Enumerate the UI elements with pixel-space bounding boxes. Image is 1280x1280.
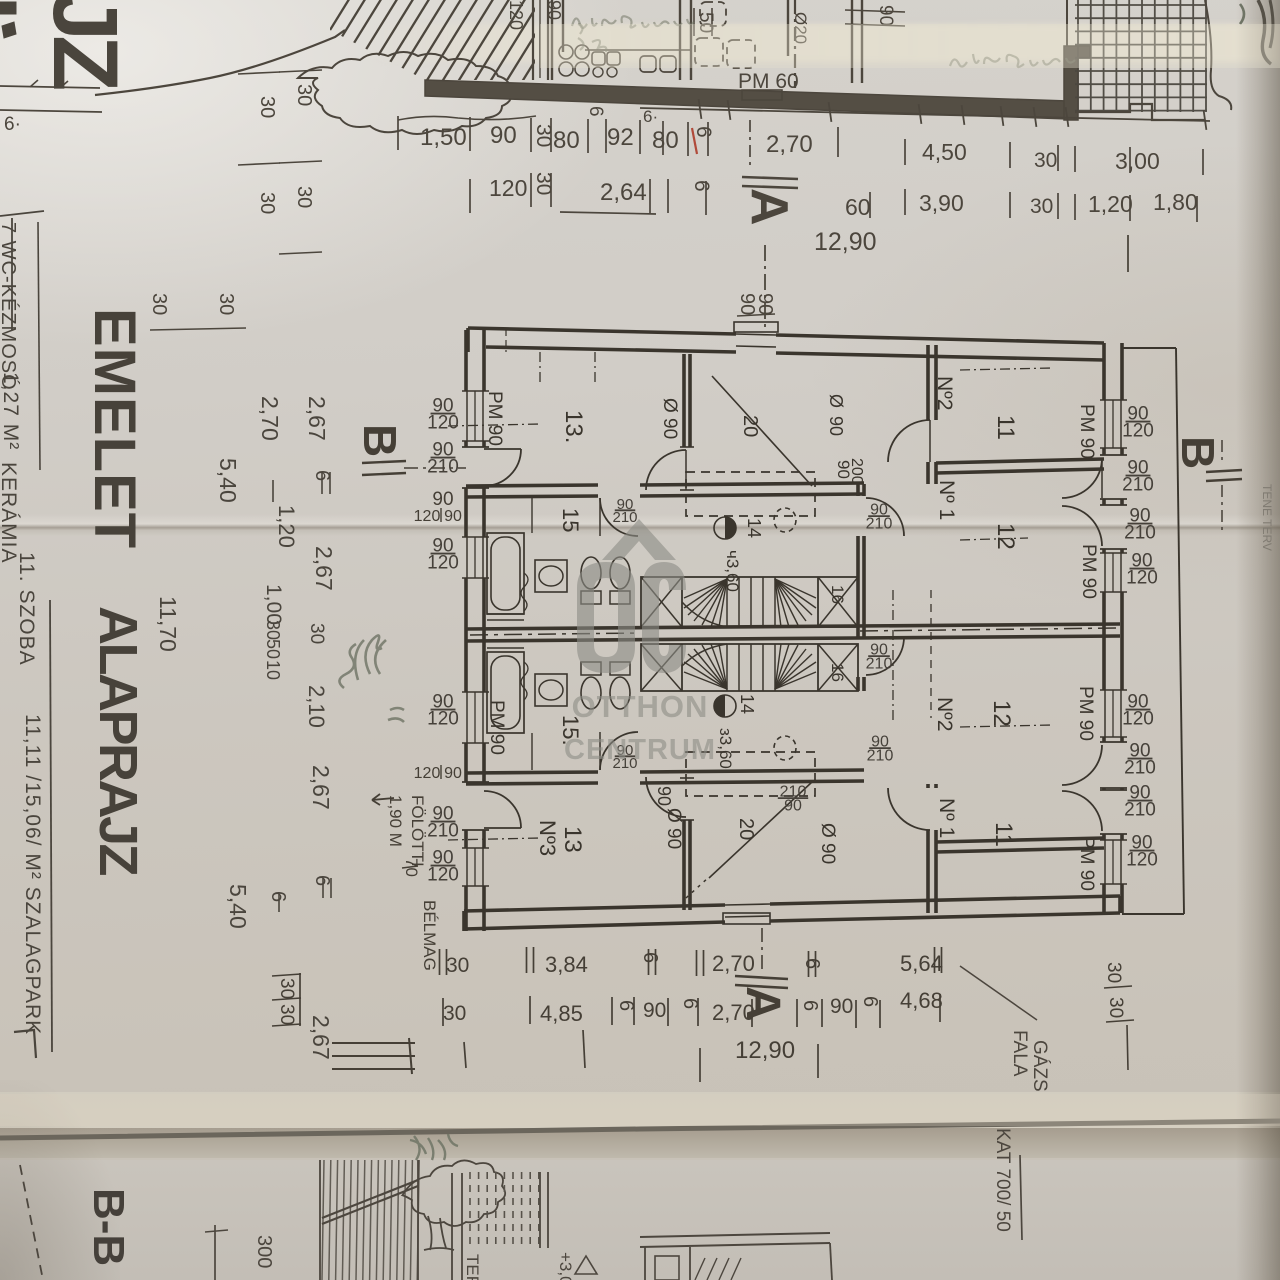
svg-text:15: 15 — [558, 508, 583, 532]
svg-text:30: 30 — [1105, 997, 1126, 1018]
svg-text:2,70: 2,70 — [766, 131, 813, 158]
svg-text:12: 12 — [992, 523, 1019, 550]
svg-text:2,67: 2,67 — [308, 1015, 334, 1060]
svg-text:30: 30 — [215, 293, 237, 315]
svg-text:2,67: 2,67 — [311, 546, 337, 591]
svg-text:1,50: 1,50 — [420, 124, 467, 151]
svg-text:Nº 1: Nº 1 — [935, 480, 958, 520]
svg-text:B: B — [1172, 436, 1224, 469]
svg-text:2,67: 2,67 — [304, 396, 330, 441]
svg-text:210: 210 — [427, 456, 459, 477]
svg-text:2,10: 2,10 — [304, 685, 329, 728]
svg-text:30: 30 — [276, 1004, 297, 1025]
svg-text:B-B: B-B — [84, 1188, 133, 1266]
svg-text:120: 120 — [427, 864, 459, 885]
svg-text:PM 90: PM 90 — [1075, 686, 1096, 741]
svg-text:KAT 700/ 50: KAT 700/ 50 — [992, 1128, 1013, 1232]
svg-text:6: 6 — [799, 1000, 821, 1011]
svg-text:ч3,60: ч3,60 — [723, 550, 742, 592]
svg-text:11. SZOBA: 11. SZOBA — [15, 552, 38, 666]
svg-text:300: 300 — [253, 1235, 275, 1268]
svg-text:30: 30 — [443, 1002, 466, 1025]
svg-text:30: 30 — [293, 84, 315, 106]
svg-text:A: A — [740, 188, 798, 226]
svg-text:3,90: 3,90 — [919, 190, 964, 216]
svg-text:20: 20 — [739, 415, 761, 437]
svg-text:3,84: 3,84 — [545, 952, 588, 977]
svg-text:120: 120 — [427, 552, 459, 573]
svg-text:PM 90: PM 90 — [1076, 404, 1097, 459]
svg-text:210: 210 — [1124, 522, 1156, 543]
svg-text:Nº2: Nº2 — [933, 376, 956, 411]
svg-text:10: 10 — [263, 660, 283, 680]
svg-text:2,64: 2,64 — [600, 179, 647, 206]
svg-text:6·: 6· — [4, 114, 21, 135]
svg-text:90: 90 — [784, 798, 802, 815]
svg-text:6: 6 — [267, 891, 289, 902]
svg-text:1,27 M²: 1,27 M² — [0, 372, 22, 450]
svg-text:90: 90 — [444, 765, 462, 782]
svg-text:з3,60: з3,60 — [716, 728, 735, 769]
svg-text:OTTHON: OTTHON — [572, 689, 709, 724]
svg-text:1,80: 1,80 — [1153, 189, 1198, 215]
svg-text:CENTRUM: CENTRUM — [564, 734, 716, 766]
svg-text:TENE TERV: TENE TERV — [1260, 484, 1274, 551]
svg-text:80: 80 — [652, 127, 679, 154]
svg-text:30: 30 — [293, 186, 315, 208]
svg-text:PM 90: PM 90 — [486, 700, 507, 755]
svg-text:30: 30 — [1030, 195, 1053, 218]
svg-text:210: 210 — [427, 820, 459, 841]
svg-text:KERÁMIA: KERÁMIA — [0, 462, 20, 564]
svg-text:EMELET: EMELET — [82, 308, 147, 549]
svg-text:BÉLMAG: BÉLMAG — [420, 900, 439, 971]
svg-text:200: 200 — [848, 458, 865, 485]
svg-text:11,11 /15,06/ M² SZALAGPARK: 11,11 /15,06/ M² SZALAGPARK — [21, 714, 44, 1035]
svg-text:210: 210 — [1124, 799, 1156, 820]
svg-text:120: 120 — [1122, 420, 1154, 441]
svg-text:12,90: 12,90 — [814, 228, 877, 256]
svg-text:120: 120 — [1126, 849, 1158, 870]
svg-text:6: 6 — [690, 180, 713, 192]
svg-text:ALAPRAJZ: ALAPRAJZ — [88, 606, 148, 876]
svg-text:90: 90 — [654, 786, 674, 806]
svg-text:5,64: 5,64 — [900, 951, 943, 976]
svg-text:14: 14 — [744, 518, 764, 538]
svg-text:6: 6 — [639, 952, 661, 963]
svg-text:TER: TER — [463, 1254, 482, 1280]
svg-text:80: 80 — [553, 127, 580, 154]
svg-text:A: A — [736, 986, 789, 1021]
svg-text:90: 90 — [875, 5, 896, 26]
svg-text:PM 90: PM 90 — [1078, 544, 1099, 599]
svg-text:Nº 1: Nº 1 — [935, 798, 958, 838]
svg-text:6: 6 — [859, 996, 881, 1007]
svg-text:30: 30 — [256, 96, 278, 118]
svg-text:30: 30 — [446, 954, 469, 977]
svg-text:11,70: 11,70 — [155, 596, 181, 652]
svg-text:7 WC-KÉZMOSÓ: 7 WC-KÉZMOSÓ — [0, 222, 20, 391]
svg-text:30: 30 — [256, 192, 278, 214]
svg-text:2,70: 2,70 — [712, 951, 755, 976]
svg-text:210: 210 — [867, 748, 894, 765]
svg-text:Ø 90: Ø 90 — [817, 823, 838, 864]
svg-text:5,40: 5,40 — [225, 884, 251, 929]
svg-text:16: 16 — [828, 663, 847, 682]
svg-text:120: 120 — [414, 765, 441, 782]
svg-text:14: 14 — [737, 694, 757, 714]
svg-text:6: 6 — [311, 875, 333, 886]
svg-text:210: 210 — [612, 509, 637, 526]
svg-text:4,50: 4,50 — [922, 139, 967, 165]
svg-text:50: 50 — [263, 639, 283, 659]
svg-text:Ø 90: Ø 90 — [659, 398, 680, 439]
svg-text:120: 120 — [489, 175, 527, 201]
svg-text:30: 30 — [1034, 149, 1057, 172]
svg-text:12: 12 — [988, 700, 1015, 727]
svg-text:90: 90 — [826, 416, 846, 436]
svg-text:2,67: 2,67 — [308, 765, 334, 810]
svg-text:11: 11 — [990, 822, 1017, 847]
svg-text:90: 90 — [544, 0, 564, 20]
svg-text:B: B — [354, 424, 406, 457]
svg-text:Ø: Ø — [826, 394, 846, 408]
svg-text:120: 120 — [1126, 567, 1158, 588]
svg-text:6: 6 — [692, 126, 715, 138]
svg-text:30: 30 — [1103, 962, 1124, 983]
svg-text:30: 30 — [306, 623, 327, 644]
svg-text:6·: 6· — [643, 107, 658, 126]
svg-text:Nº3: Nº3 — [535, 820, 560, 856]
svg-text:120: 120 — [1122, 708, 1154, 729]
svg-text:Nº2: Nº2 — [933, 697, 956, 732]
svg-text:90: 90 — [432, 489, 453, 510]
svg-text:60: 60 — [845, 194, 871, 220]
svg-text:3,00: 3,00 — [1115, 148, 1160, 174]
svg-text:120: 120 — [414, 508, 441, 525]
svg-text:Ø 90: Ø 90 — [663, 808, 684, 849]
svg-text:210: 210 — [866, 656, 893, 673]
svg-text:210: 210 — [1124, 757, 1156, 778]
svg-text:90: 90 — [444, 508, 462, 525]
svg-text:1,00: 1,00 — [262, 584, 285, 625]
svg-text:PM 90: PM 90 — [484, 391, 505, 446]
svg-text:6: 6 — [585, 106, 606, 117]
svg-text:11: 11 — [992, 415, 1019, 440]
svg-text:1,90 M: 1,90 M — [386, 795, 405, 847]
svg-text:13.: 13. — [560, 410, 587, 443]
svg-text:2,70: 2,70 — [257, 396, 283, 441]
svg-text:GÁZS: GÁZS — [1029, 1040, 1050, 1092]
svg-text:90: 90 — [830, 995, 853, 1018]
svg-text:4,85: 4,85 — [540, 1001, 583, 1026]
svg-text:120: 120 — [506, 0, 526, 30]
svg-text:13: 13 — [559, 826, 586, 853]
svg-text:30: 30 — [263, 620, 283, 640]
svg-text:30: 30 — [276, 978, 297, 999]
svg-text:1,20: 1,20 — [1088, 191, 1133, 217]
svg-text:120: 120 — [427, 708, 459, 729]
svg-text:FALA: FALA — [1009, 1030, 1030, 1077]
svg-text:5,40: 5,40 — [215, 458, 241, 503]
svg-text:4,68: 4,68 — [900, 988, 943, 1013]
svg-text:+3,0: +3,0 — [556, 1252, 575, 1280]
svg-text:90: 90 — [643, 999, 666, 1022]
svg-text:20: 20 — [735, 818, 757, 840]
svg-text:120: 120 — [427, 412, 459, 433]
svg-text:210: 210 — [1122, 474, 1154, 495]
svg-text:6: 6 — [801, 958, 823, 969]
svg-text:FÖLÖTTI: FÖLÖTTI — [408, 795, 427, 867]
svg-text:JZ: JZ — [34, 0, 136, 89]
svg-text:16: 16 — [828, 585, 847, 604]
svg-text:12,90: 12,90 — [735, 1037, 795, 1064]
svg-text:92: 92 — [607, 124, 634, 151]
svg-text:90: 90 — [490, 122, 517, 149]
svg-text:90: 90 — [754, 293, 776, 315]
svg-text:PM 90: PM 90 — [1076, 836, 1097, 891]
svg-text:1,20: 1,20 — [274, 505, 299, 548]
svg-text:210: 210 — [866, 516, 893, 533]
svg-text:30: 30 — [148, 293, 170, 315]
